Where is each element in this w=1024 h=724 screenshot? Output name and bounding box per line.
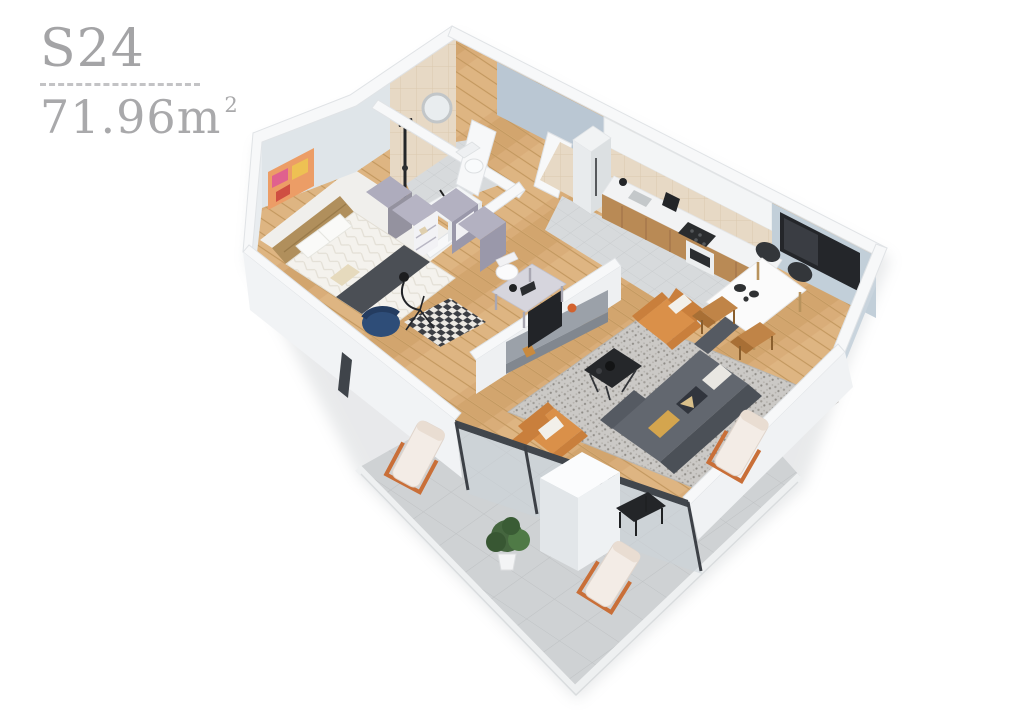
round-mirror-icon — [423, 94, 451, 122]
unit-code: S24 — [40, 22, 236, 77]
orange-vase — [568, 304, 577, 313]
area-label: 71.96m2 — [40, 90, 236, 144]
burner — [694, 238, 698, 242]
apartment-render — [243, 26, 891, 700]
kettle — [619, 178, 627, 186]
label-divider — [40, 83, 200, 86]
burner — [690, 229, 694, 233]
plant-pot — [498, 554, 516, 570]
area-exponent: 2 — [224, 93, 238, 117]
desk-lamp — [509, 284, 517, 292]
plate — [749, 291, 759, 298]
plate — [734, 284, 746, 292]
area-value: 71.96m — [40, 90, 221, 144]
shower-valve — [402, 165, 408, 171]
page: S24 71.96m2 — [0, 0, 1024, 724]
burner — [702, 242, 706, 246]
toilet-bowl — [465, 159, 483, 173]
cup — [743, 296, 748, 301]
plan-label: S24 71.96m2 — [40, 22, 236, 144]
burner — [698, 233, 702, 237]
blue-accent-chair — [362, 309, 400, 337]
